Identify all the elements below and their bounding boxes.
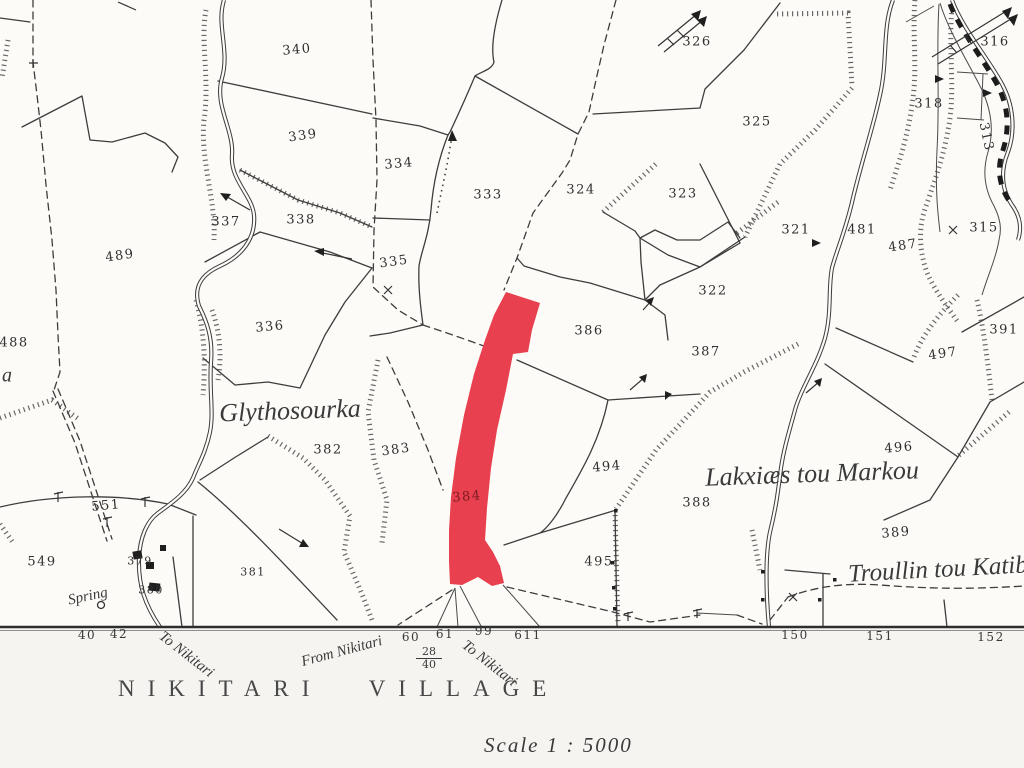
highlighted-parcel[interactable] xyxy=(449,292,540,586)
parcel-label-379: 379 xyxy=(127,555,153,568)
parcel-label-387: 387 xyxy=(691,345,720,360)
scale-label: Scale 1 : 5000 xyxy=(484,733,633,758)
parcel-label-323: 323 xyxy=(668,187,697,202)
parcel-label-321: 321 xyxy=(781,223,810,238)
parcel-label-481: 481 xyxy=(847,223,876,238)
parcel-label-494: 494 xyxy=(592,458,623,475)
parcel-label-337: 337 xyxy=(211,215,240,230)
road-number-151: 151 xyxy=(866,629,893,643)
road-number-60: 60 xyxy=(402,630,420,644)
parcel-label-325: 325 xyxy=(742,115,771,130)
parcel-label-488: 488 xyxy=(0,336,29,351)
parcel-label-391: 391 xyxy=(989,323,1018,338)
parcel-label-340: 340 xyxy=(282,41,313,58)
road-number-150: 150 xyxy=(781,628,808,642)
parcel-label-549: 549 xyxy=(27,555,56,570)
parcel-label-386: 386 xyxy=(574,324,603,339)
parcel-label-389: 389 xyxy=(881,524,912,541)
parcel-label-336: 336 xyxy=(255,318,286,335)
parcel-label-382: 382 xyxy=(313,443,342,458)
fraction-denominator: 40 xyxy=(422,658,436,671)
parcel-label-326: 326 xyxy=(682,35,711,50)
parcel-label-334: 334 xyxy=(384,155,415,172)
road-number-40: 40 xyxy=(78,628,96,642)
parcel-label-318: 318 xyxy=(914,97,943,112)
parcel-label-495: 495 xyxy=(584,555,613,570)
place-name-a: a xyxy=(2,365,12,388)
parcel-label-384: 384 xyxy=(452,488,483,505)
parcel-label-322: 322 xyxy=(698,284,727,299)
parcel-label-381: 381 xyxy=(240,566,266,579)
map-linework xyxy=(0,0,1024,768)
parcel-label-388: 388 xyxy=(682,496,711,511)
parcel-label-338: 338 xyxy=(286,213,315,228)
parcel-label-496: 496 xyxy=(884,439,915,456)
parcel-label-551: 551 xyxy=(91,497,122,514)
parcel-label-315: 315 xyxy=(969,221,998,236)
road-number-152: 152 xyxy=(977,630,1004,644)
place-name-glythosourka: Glythosourka xyxy=(219,394,362,429)
parcel-label-333: 333 xyxy=(473,188,502,203)
road-number-61: 61 xyxy=(436,627,454,641)
cadastral-map: 3403393373383343333353243233263253214814… xyxy=(0,0,1024,768)
parcel-label-316: 316 xyxy=(980,35,1009,50)
road-number-611: 611 xyxy=(514,628,541,642)
road-number-99: 99 xyxy=(475,624,493,638)
parcel-label-380: 380 xyxy=(138,584,164,597)
parcel-label-324: 324 xyxy=(566,183,595,198)
road-number-42: 42 xyxy=(110,627,128,641)
village-title: NIKITARI VILLAGE xyxy=(118,676,559,702)
road-fraction-label: 28 40 xyxy=(416,646,442,670)
